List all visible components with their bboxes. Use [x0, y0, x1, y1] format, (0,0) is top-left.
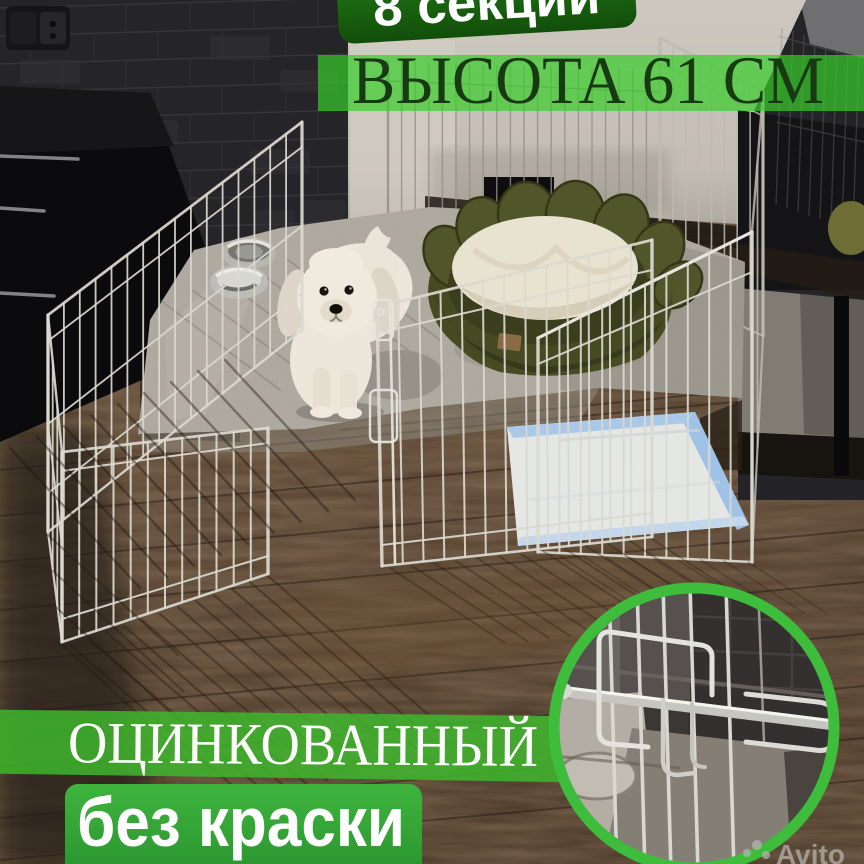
- svg-text:ВЫСОТА 61 СМ: ВЫСОТА 61 СМ: [352, 42, 824, 118]
- svg-text:без краски: без краски: [77, 783, 405, 861]
- svg-text:ОЦИНКОВАННЫЙ: ОЦИНКОВАННЫЙ: [68, 709, 539, 779]
- svg-text:Avito: Avito: [776, 839, 845, 864]
